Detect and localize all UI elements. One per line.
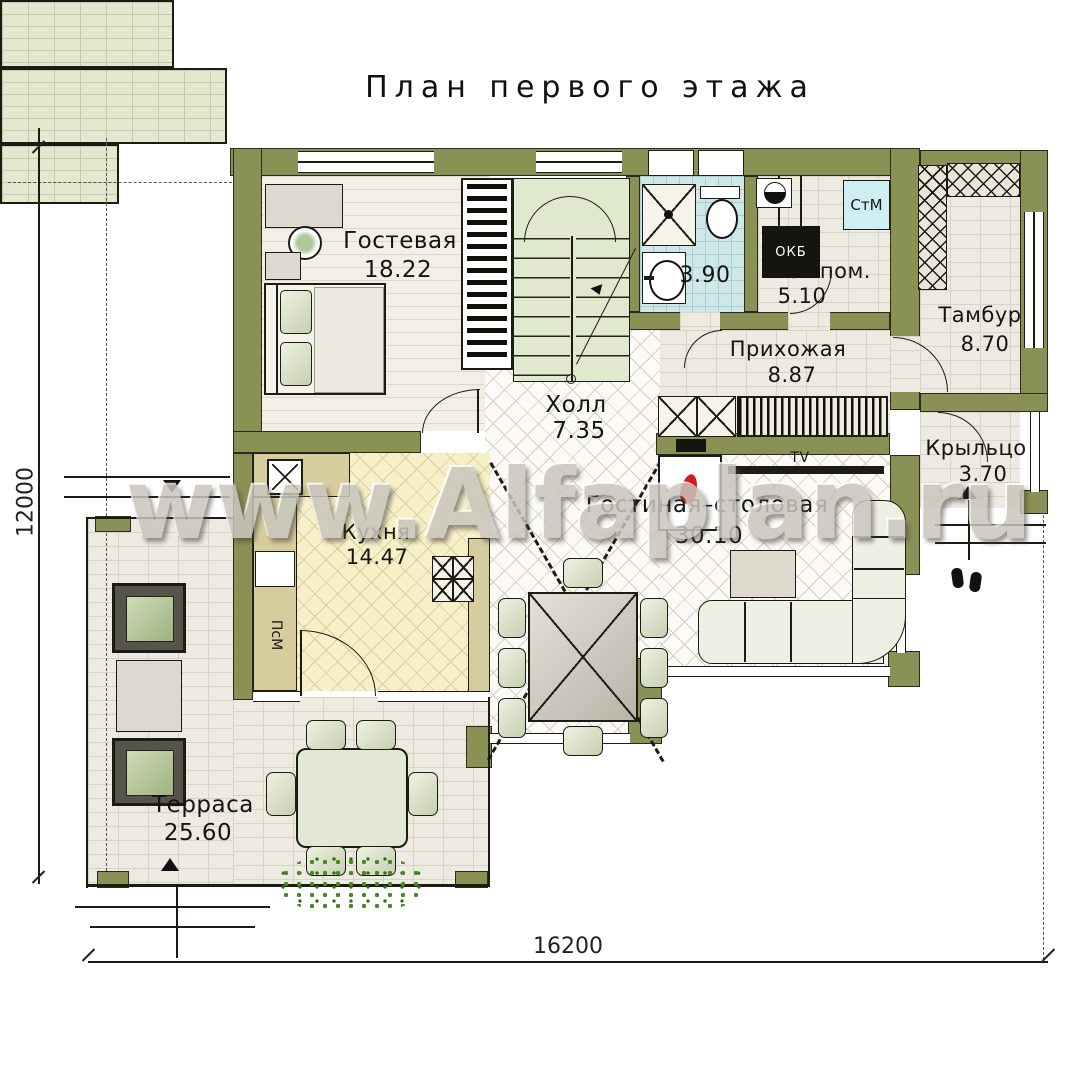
footprint-icon — [969, 571, 983, 592]
bed-headboard — [276, 284, 278, 394]
stair-post — [566, 374, 576, 384]
oven-module — [453, 556, 474, 579]
room-area-tambour: 8.70 — [961, 332, 1010, 356]
bed-pillow — [280, 342, 312, 386]
door-opening — [788, 312, 830, 330]
dining-chair — [498, 648, 526, 688]
room-label-tech: Тех пом. — [773, 259, 871, 283]
stair-treads — [513, 238, 570, 382]
window — [378, 691, 490, 702]
bath-shelf — [648, 150, 694, 176]
window-line — [298, 161, 434, 163]
dining-chair — [563, 726, 603, 756]
sofa-cushion-line — [854, 568, 904, 570]
sofa-cushion-line — [790, 602, 792, 662]
door-leaf — [477, 389, 479, 433]
oven-module — [432, 579, 453, 602]
room-area-porch: 3.70 — [959, 462, 1008, 486]
sofa-cushion-line — [854, 536, 904, 538]
room-label-entry: Прихожая — [730, 337, 846, 361]
room-area-bath: 3.90 — [680, 263, 731, 288]
dining-table — [528, 592, 638, 722]
stair-divider — [571, 236, 573, 382]
step-line — [90, 926, 255, 928]
terrace-chair — [266, 772, 296, 816]
terrace-edge — [86, 517, 233, 519]
step-line — [75, 906, 270, 908]
shoe-bench — [658, 396, 697, 437]
sofa-chaise — [852, 500, 906, 612]
wall-guest-south — [233, 431, 421, 453]
tech-basin-bowl — [764, 182, 786, 204]
closet-hatched — [947, 163, 1020, 197]
kitchen-sink — [255, 551, 295, 587]
dining-chair — [563, 558, 603, 588]
sofa-join — [854, 600, 904, 622]
dining-chair — [640, 598, 668, 638]
wall-post — [1020, 490, 1048, 514]
room-label-hall: Холл — [545, 392, 606, 418]
floor-plan: План первого этажа 12000 16200 — [0, 0, 1080, 1080]
step-line — [64, 476, 230, 478]
nightstand — [265, 252, 301, 280]
bottom-dimension-value: 16200 — [533, 934, 603, 959]
basin-tap — [644, 276, 654, 280]
wall-post — [888, 651, 920, 687]
boiler-pipe — [800, 176, 802, 228]
room-label-porch: Крыльцо — [925, 436, 1026, 460]
axis-dashed-left — [106, 138, 107, 886]
room-label-terrace: Терраса — [152, 792, 254, 818]
shoe-bench — [697, 396, 736, 437]
dining-chair — [498, 698, 526, 738]
armchair-cushion — [126, 596, 174, 642]
left-dimension-value: 12000 — [14, 467, 39, 537]
coffee-table — [730, 550, 796, 598]
electric-panel — [676, 439, 706, 452]
washing-machine-label: СтМ — [850, 196, 882, 214]
steps-porch — [0, 144, 119, 204]
terrace-chair — [408, 772, 438, 816]
oven-module — [432, 556, 453, 579]
bath-fixture — [698, 150, 744, 176]
wall-tambour-south — [920, 393, 1048, 412]
room-area-hall: 7.35 — [552, 418, 605, 444]
room-label-guest: Гостевая — [343, 228, 457, 254]
oven-module — [453, 579, 474, 602]
arrow-up-icon — [959, 486, 977, 499]
room-label-living: Гостиная–столовая — [586, 492, 828, 518]
dining-chair — [640, 698, 668, 738]
dishwasher: ПсМ — [258, 600, 294, 670]
step-line — [935, 524, 1046, 526]
room-area-guest: 18.22 — [364, 257, 432, 283]
window-line — [1033, 212, 1035, 348]
arrow-down-icon — [163, 480, 181, 493]
shower-drain — [664, 210, 673, 219]
entry-wardrobe — [737, 396, 888, 437]
sofa-cushion-line — [744, 602, 746, 662]
bottom-dimension-line — [88, 961, 1048, 963]
window — [1030, 412, 1040, 492]
step-line — [64, 496, 230, 498]
steps-north — [0, 0, 174, 68]
bed-pillow — [280, 290, 312, 334]
footprint-icon — [951, 567, 965, 588]
window — [253, 691, 300, 702]
cooktop-burner-icon — [272, 464, 298, 490]
toilet-bowl — [706, 199, 738, 239]
porch-rail — [968, 500, 970, 560]
closet-hatched — [918, 165, 947, 290]
dining-chair — [498, 598, 526, 638]
stair-treads — [576, 238, 630, 358]
door-leaf — [300, 630, 302, 696]
arrow-up-icon — [161, 858, 179, 871]
tv-unit — [728, 466, 884, 474]
armchair-cushion — [126, 750, 174, 796]
plant — [280, 856, 422, 912]
dishwasher-label: ПсМ — [268, 620, 284, 650]
room-area-entry: 8.87 — [768, 363, 817, 387]
axis-dashed-top — [8, 182, 232, 183]
wall-kitchen-west — [233, 453, 253, 700]
room-label-kitchen: Кухня — [342, 520, 411, 544]
room-area-terrace: 25.60 — [164, 820, 232, 846]
hanging-clothes — [467, 184, 507, 364]
door-opening — [680, 312, 720, 330]
window-line — [536, 161, 622, 163]
step-line — [935, 542, 1046, 544]
page-title: План первого этажа — [160, 70, 1020, 105]
tv-label: TV — [790, 450, 809, 466]
room-area-kitchen: 14.47 — [346, 545, 409, 569]
axis-dashed-right — [1043, 515, 1044, 960]
terrace-chair — [306, 720, 346, 750]
dining-chair — [640, 648, 668, 688]
window — [660, 666, 890, 677]
terrace-side-table — [116, 660, 182, 732]
toilet-tank — [700, 186, 740, 199]
terrace-table — [296, 748, 408, 848]
step-line — [176, 886, 178, 958]
terrace-edge — [86, 518, 88, 888]
terrace-chair — [356, 720, 396, 750]
boiler-label: ОКБ — [775, 245, 806, 260]
desk — [265, 184, 343, 228]
room-area-tech: 5.10 — [778, 284, 827, 308]
wall-bath-south — [626, 312, 890, 330]
room-label-tambour: Тамбур — [938, 303, 1021, 327]
terrace-edge — [488, 697, 490, 886]
bed-blanket — [314, 287, 384, 393]
washing-machine: СтМ — [843, 180, 890, 230]
dim-tick — [82, 948, 95, 961]
room-area-living: 30.10 — [675, 523, 743, 549]
